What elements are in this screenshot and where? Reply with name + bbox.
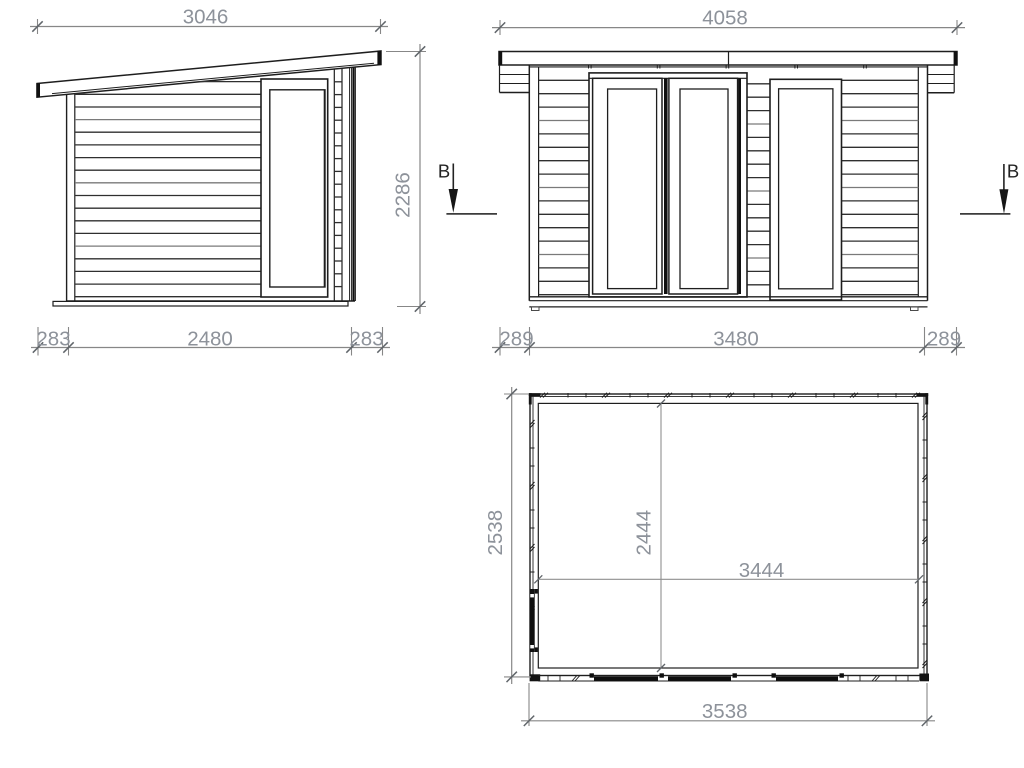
- svg-text:283: 283: [349, 328, 383, 351]
- svg-text:289: 289: [927, 328, 961, 351]
- svg-text:289: 289: [499, 328, 533, 351]
- svg-text:3444: 3444: [739, 559, 785, 582]
- svg-text:2444: 2444: [633, 510, 656, 556]
- svg-text:3480: 3480: [713, 328, 759, 351]
- svg-text:2538: 2538: [484, 510, 507, 556]
- svg-text:3046: 3046: [183, 6, 229, 29]
- svg-text:2286: 2286: [392, 172, 415, 218]
- svg-text:283: 283: [36, 328, 70, 351]
- svg-text:B: B: [1007, 161, 1019, 182]
- svg-text:2480: 2480: [187, 328, 233, 351]
- svg-text:4058: 4058: [702, 7, 748, 30]
- svg-text:B: B: [438, 161, 450, 182]
- svg-text:3538: 3538: [702, 700, 748, 723]
